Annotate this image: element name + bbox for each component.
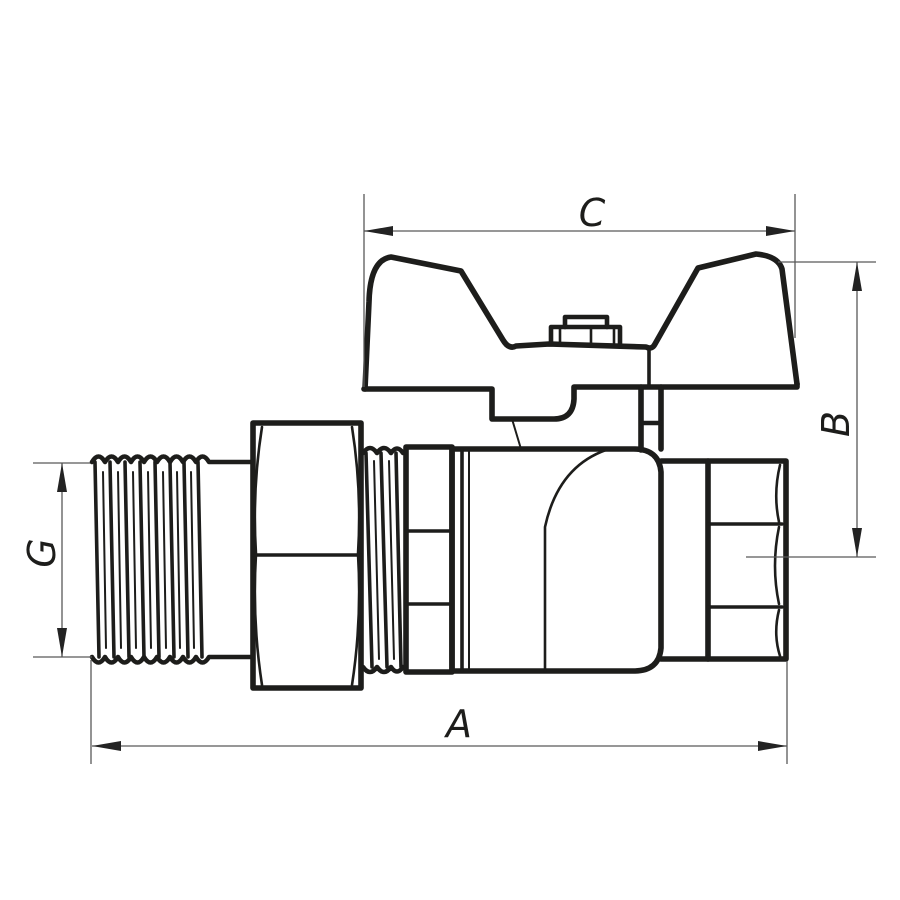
handle-wings-outline: [365, 254, 797, 389]
handle-hub-bottom: [364, 384, 797, 419]
butterfly-handle: [364, 254, 797, 419]
outlet-nut-chamfer: [775, 465, 780, 656]
dimension-b: B: [746, 262, 876, 557]
body-thread-flanks-major: [366, 453, 401, 667]
dim-a-label: A: [443, 702, 472, 746]
dim-g-label: G: [20, 538, 64, 567]
outlet-hex-nut: [661, 461, 786, 659]
dim-g-arrow-bottom: [57, 628, 67, 657]
union-nut: [253, 423, 361, 688]
male-thread: [92, 457, 253, 663]
collar-flats: [406, 531, 452, 604]
body-outline: [452, 449, 661, 671]
dim-c-arrow-right: [766, 226, 795, 236]
body-collar: [406, 447, 452, 672]
dim-c-arrow-left: [364, 226, 393, 236]
outlet-cylinder: [661, 461, 708, 659]
dim-a-arrow-right: [758, 741, 787, 751]
handle-boss-ticks: [560, 329, 614, 343]
body-thread: [363, 448, 403, 672]
collar-outline: [406, 447, 452, 672]
dim-b-arrow-bottom: [852, 528, 862, 557]
drawing-canvas: C B G A: [0, 0, 900, 900]
dimension-c: C: [364, 191, 795, 387]
thread-flanks-minor: [103, 472, 194, 648]
outlet-nut-flats: [708, 524, 782, 607]
handle-boss-lower: [551, 327, 620, 344]
dim-b-label: B: [814, 411, 858, 437]
dimension-g: G: [20, 463, 92, 657]
ball-contour: [545, 450, 606, 671]
dim-g-arrow-top: [57, 463, 67, 492]
thread-crest-top: [92, 457, 253, 463]
valve-body: [452, 449, 661, 671]
neck-taper-line: [512, 419, 521, 449]
valve-technical-drawing: C B G A: [0, 0, 900, 900]
dim-b-arrow-top: [852, 262, 862, 291]
dim-a-arrow-left: [92, 741, 121, 751]
dimension-a: A: [91, 660, 787, 764]
dim-c-label: C: [579, 191, 606, 235]
body-thread-crest-bottom: [363, 667, 403, 672]
